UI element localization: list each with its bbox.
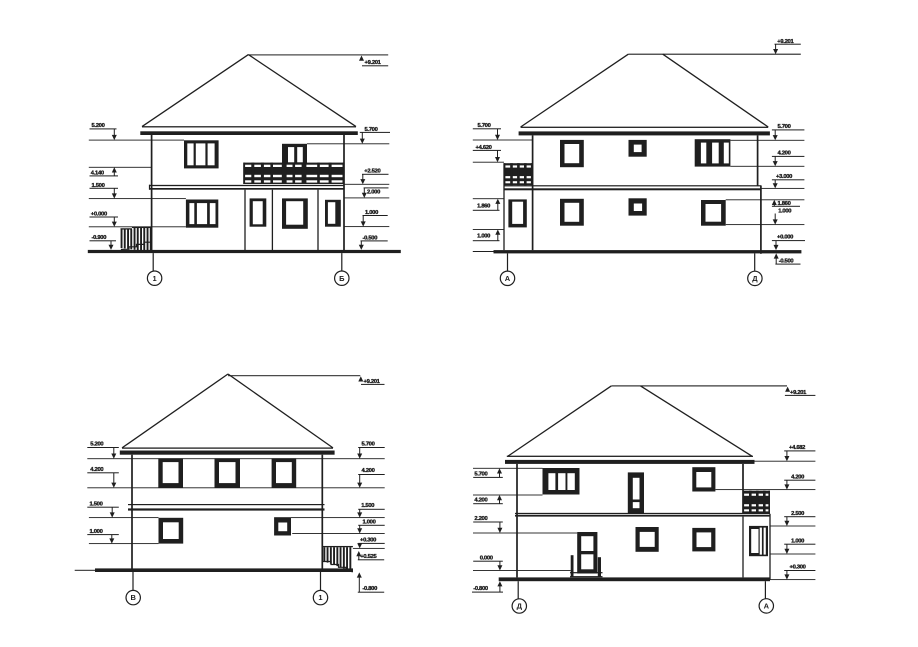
svg-text:+4.682: +4.682 [789,445,805,451]
svg-text:-0.900: -0.900 [92,235,107,241]
svg-text:4.200: 4.200 [791,474,804,480]
svg-text:1.500: 1.500 [92,183,105,189]
svg-text:1.500: 1.500 [90,502,103,508]
svg-text:2.500: 2.500 [791,511,804,517]
svg-text:+0.000: +0.000 [777,235,793,241]
svg-text:0.000: 0.000 [480,555,493,561]
svg-text:+4.620: +4.620 [476,145,492,151]
svg-text:5.200: 5.200 [92,123,105,129]
svg-text:+0.300: +0.300 [360,538,376,544]
svg-text:1.000: 1.000 [365,210,378,216]
svg-text:5.700: 5.700 [474,472,487,478]
svg-text:+0.000: +0.000 [91,212,107,218]
svg-text:2.000: 2.000 [367,190,380,196]
svg-text:Д: Д [752,274,758,283]
svg-text:В: В [130,593,136,602]
svg-text:4.140: 4.140 [91,171,104,177]
svg-text:5.700: 5.700 [362,442,375,448]
svg-text:1: 1 [153,274,157,283]
svg-text:4.200: 4.200 [474,497,487,503]
svg-text:-0.500: -0.500 [363,235,378,241]
svg-text:+0.525: +0.525 [360,554,377,560]
svg-text:1.860: 1.860 [778,201,791,207]
svg-text:+3.000: +3.000 [776,174,792,180]
svg-text:-0.800: -0.800 [362,586,377,592]
svg-text:5.700: 5.700 [478,123,491,129]
svg-text:1: 1 [318,593,322,602]
svg-text:4.200: 4.200 [90,467,103,473]
svg-text:+2.520: +2.520 [364,168,380,174]
svg-text:1.860: 1.860 [477,203,490,209]
svg-text:5.700: 5.700 [365,127,378,133]
svg-text:+0.300: +0.300 [790,565,806,571]
svg-text:1.500: 1.500 [361,503,374,509]
svg-text:-0.800: -0.800 [473,586,488,592]
svg-text:Б: Б [339,274,345,283]
svg-text:1.000: 1.000 [778,209,791,215]
svg-text:Д: Д [517,602,523,611]
svg-text:5.200: 5.200 [90,442,103,448]
svg-text:4.200: 4.200 [362,468,375,474]
svg-text:5.700: 5.700 [778,124,791,130]
svg-text:2.200: 2.200 [474,516,487,522]
svg-text:А: А [505,274,511,283]
svg-text:+9.201: +9.201 [365,60,382,66]
svg-text:1.000: 1.000 [363,520,376,526]
svg-text:1.000: 1.000 [791,538,804,544]
svg-text:А: А [764,602,770,611]
svg-text:1.000: 1.000 [90,529,103,535]
svg-text:4.200: 4.200 [778,151,791,157]
svg-text:1.000: 1.000 [477,234,490,240]
